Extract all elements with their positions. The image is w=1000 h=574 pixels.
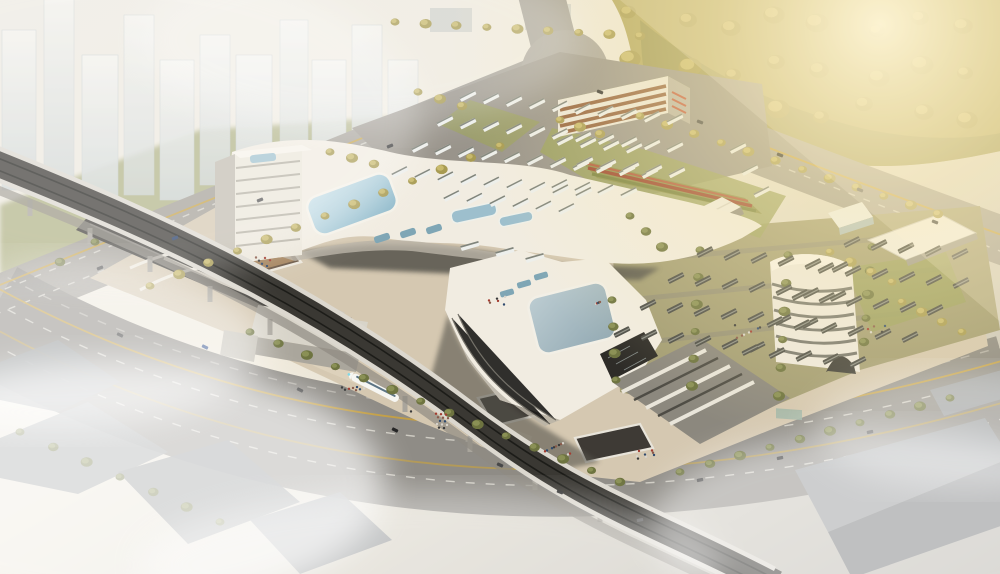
aerial-render: [0, 0, 1000, 574]
atmosphere: [0, 0, 1000, 574]
rendering-canvas: [0, 0, 1000, 574]
